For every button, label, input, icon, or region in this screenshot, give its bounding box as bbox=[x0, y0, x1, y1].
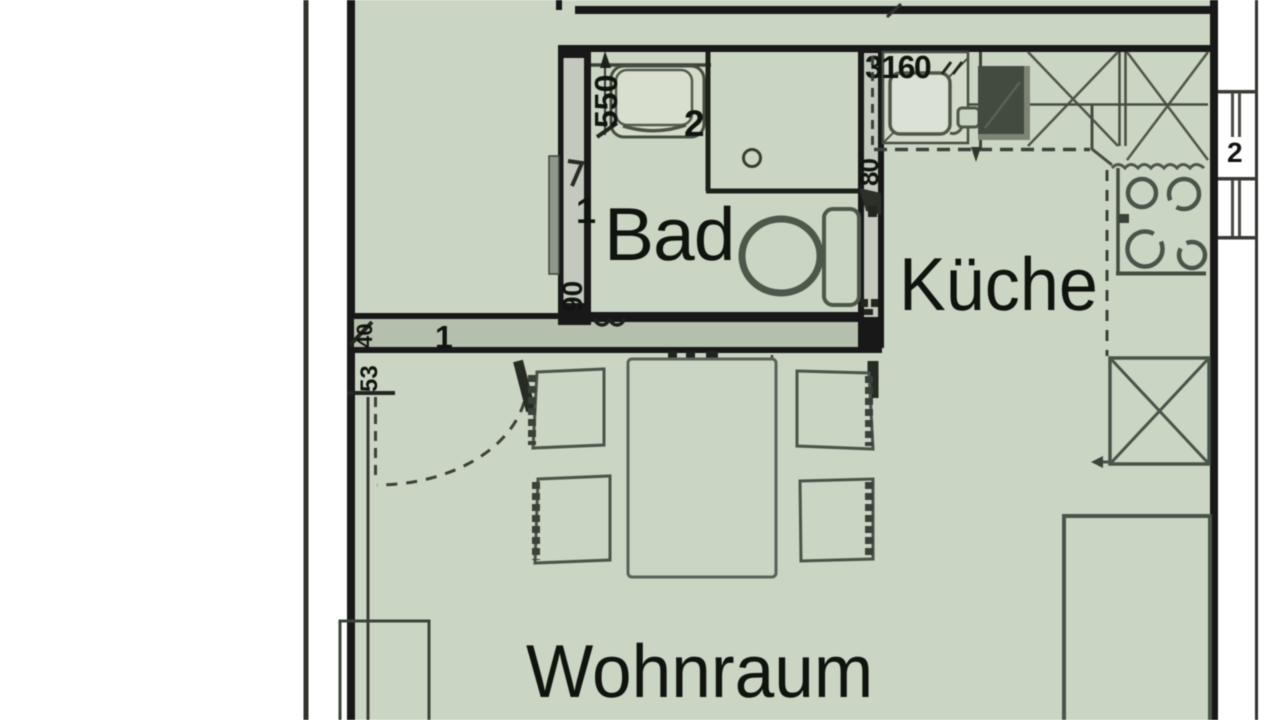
svg-text:80: 80 bbox=[854, 159, 884, 186]
svg-text:3160: 3160 bbox=[865, 49, 931, 85]
svg-text:550: 550 bbox=[588, 75, 624, 128]
svg-text:1: 1 bbox=[435, 319, 453, 355]
svg-text:40: 40 bbox=[352, 324, 377, 348]
svg-text:Küche: Küche bbox=[899, 242, 1098, 326]
svg-text:90: 90 bbox=[557, 281, 588, 312]
svg-text:1: 1 bbox=[576, 190, 596, 231]
svg-text:2: 2 bbox=[684, 103, 705, 144]
svg-text:53: 53 bbox=[356, 365, 383, 392]
svg-text:Wohnraum: Wohnraum bbox=[526, 629, 873, 713]
svg-text:Bad: Bad bbox=[604, 192, 734, 276]
svg-text:2: 2 bbox=[1227, 137, 1243, 168]
